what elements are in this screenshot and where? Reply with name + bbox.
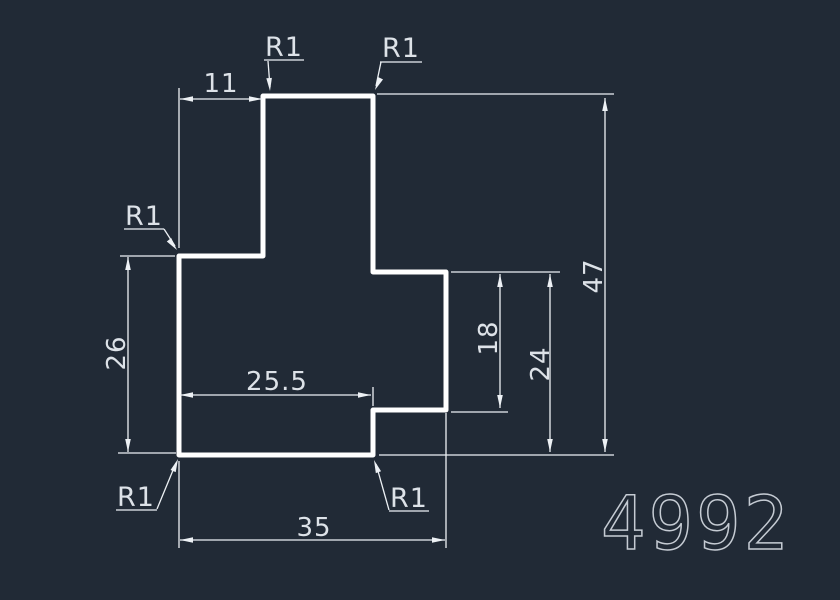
fillet-label-bottom-mid: R1 [390, 483, 428, 514]
dim-text-25-5: 25.5 [246, 367, 308, 397]
fillet-label-top-right: R1 [382, 33, 420, 64]
arrow-leader-bottom-mid [371, 459, 381, 473]
arrow-35-right [432, 537, 445, 543]
fillet-label-bottom-left: R1 [117, 482, 155, 513]
dim-text-47: 47 [579, 258, 609, 293]
arrow-25-5-left [180, 392, 193, 398]
part-number: 4992 [601, 481, 791, 567]
arrow-24-bottom [547, 439, 553, 452]
arrow-47-bottom [602, 439, 608, 452]
dim-text-18: 18 [474, 320, 504, 355]
dim-text-26: 26 [102, 335, 132, 370]
arrow-26-bottom [125, 439, 131, 452]
dim-text-24: 24 [526, 346, 556, 381]
dimension-arrowheads [125, 77, 608, 543]
cad-drawing-area: 11 25.5 35 26 18 24 47 R1 R1 R1 R1 R1 49… [0, 0, 840, 600]
arrow-26-top [125, 257, 131, 270]
arrow-11-right [249, 96, 262, 102]
dim-text-35: 35 [296, 513, 331, 543]
arrow-47-top [602, 98, 608, 111]
arrow-18-top [497, 274, 503, 287]
cad-canvas: 11 25.5 35 26 18 24 47 R1 R1 R1 R1 R1 49… [0, 0, 840, 600]
arrow-25-5-right [358, 392, 371, 398]
dimension-lines [116, 60, 614, 548]
dim-text-11: 11 [203, 69, 238, 99]
arrow-18-bottom [497, 395, 503, 408]
fillet-label-left-step: R1 [125, 201, 163, 232]
arrow-11-left [180, 96, 193, 102]
part-outline [179, 96, 446, 455]
arrow-leader-top-left [266, 78, 272, 91]
arrow-24-top [547, 274, 553, 287]
arrow-leader-top-right [372, 77, 383, 91]
arrow-35-left [180, 537, 193, 543]
arrow-leader-left-step [167, 238, 179, 252]
fillet-label-top-left: R1 [265, 32, 303, 63]
